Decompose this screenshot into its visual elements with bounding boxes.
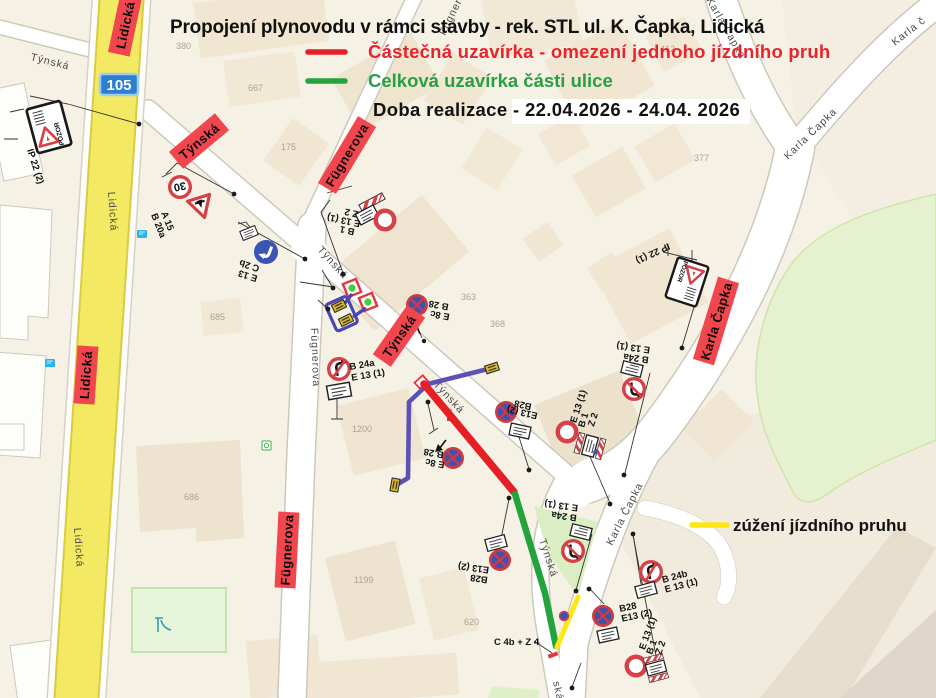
svg-text:1199: 1199 [354, 575, 373, 585]
svg-text:175: 175 [281, 142, 296, 152]
svg-text:zúžení jízdního pruhu: zúžení jízdního pruhu [733, 516, 907, 535]
svg-text:Doba realizace - 22.04.2026 -: Doba realizace - 22.04.2026 - 24.04. 202… [373, 99, 740, 120]
svg-text:363: 363 [461, 292, 476, 302]
svg-text:620: 620 [464, 617, 479, 627]
svg-text:667: 667 [248, 83, 263, 93]
svg-text:685: 685 [210, 312, 225, 322]
svg-text:377: 377 [694, 153, 709, 163]
svg-text:1200: 1200 [352, 424, 372, 434]
svg-text:686: 686 [184, 492, 199, 502]
svg-text:105: 105 [106, 77, 131, 94]
svg-text:C 4b + Z 4: C 4b + Z 4 [494, 637, 540, 648]
svg-text:Částečná uzavírka - omezení je: Částečná uzavírka - omezení jednoho jízd… [368, 41, 830, 62]
svg-text:Propojení plynovodu v rámci st: Propojení plynovodu v rámci stavby - rek… [170, 16, 765, 38]
svg-text:Celková uzavírka části ulice: Celková uzavírka části ulice [368, 70, 613, 91]
svg-text:Fügnerova: Fügnerova [308, 328, 322, 388]
svg-text:368: 368 [490, 319, 505, 329]
svg-text:380: 380 [176, 41, 191, 51]
